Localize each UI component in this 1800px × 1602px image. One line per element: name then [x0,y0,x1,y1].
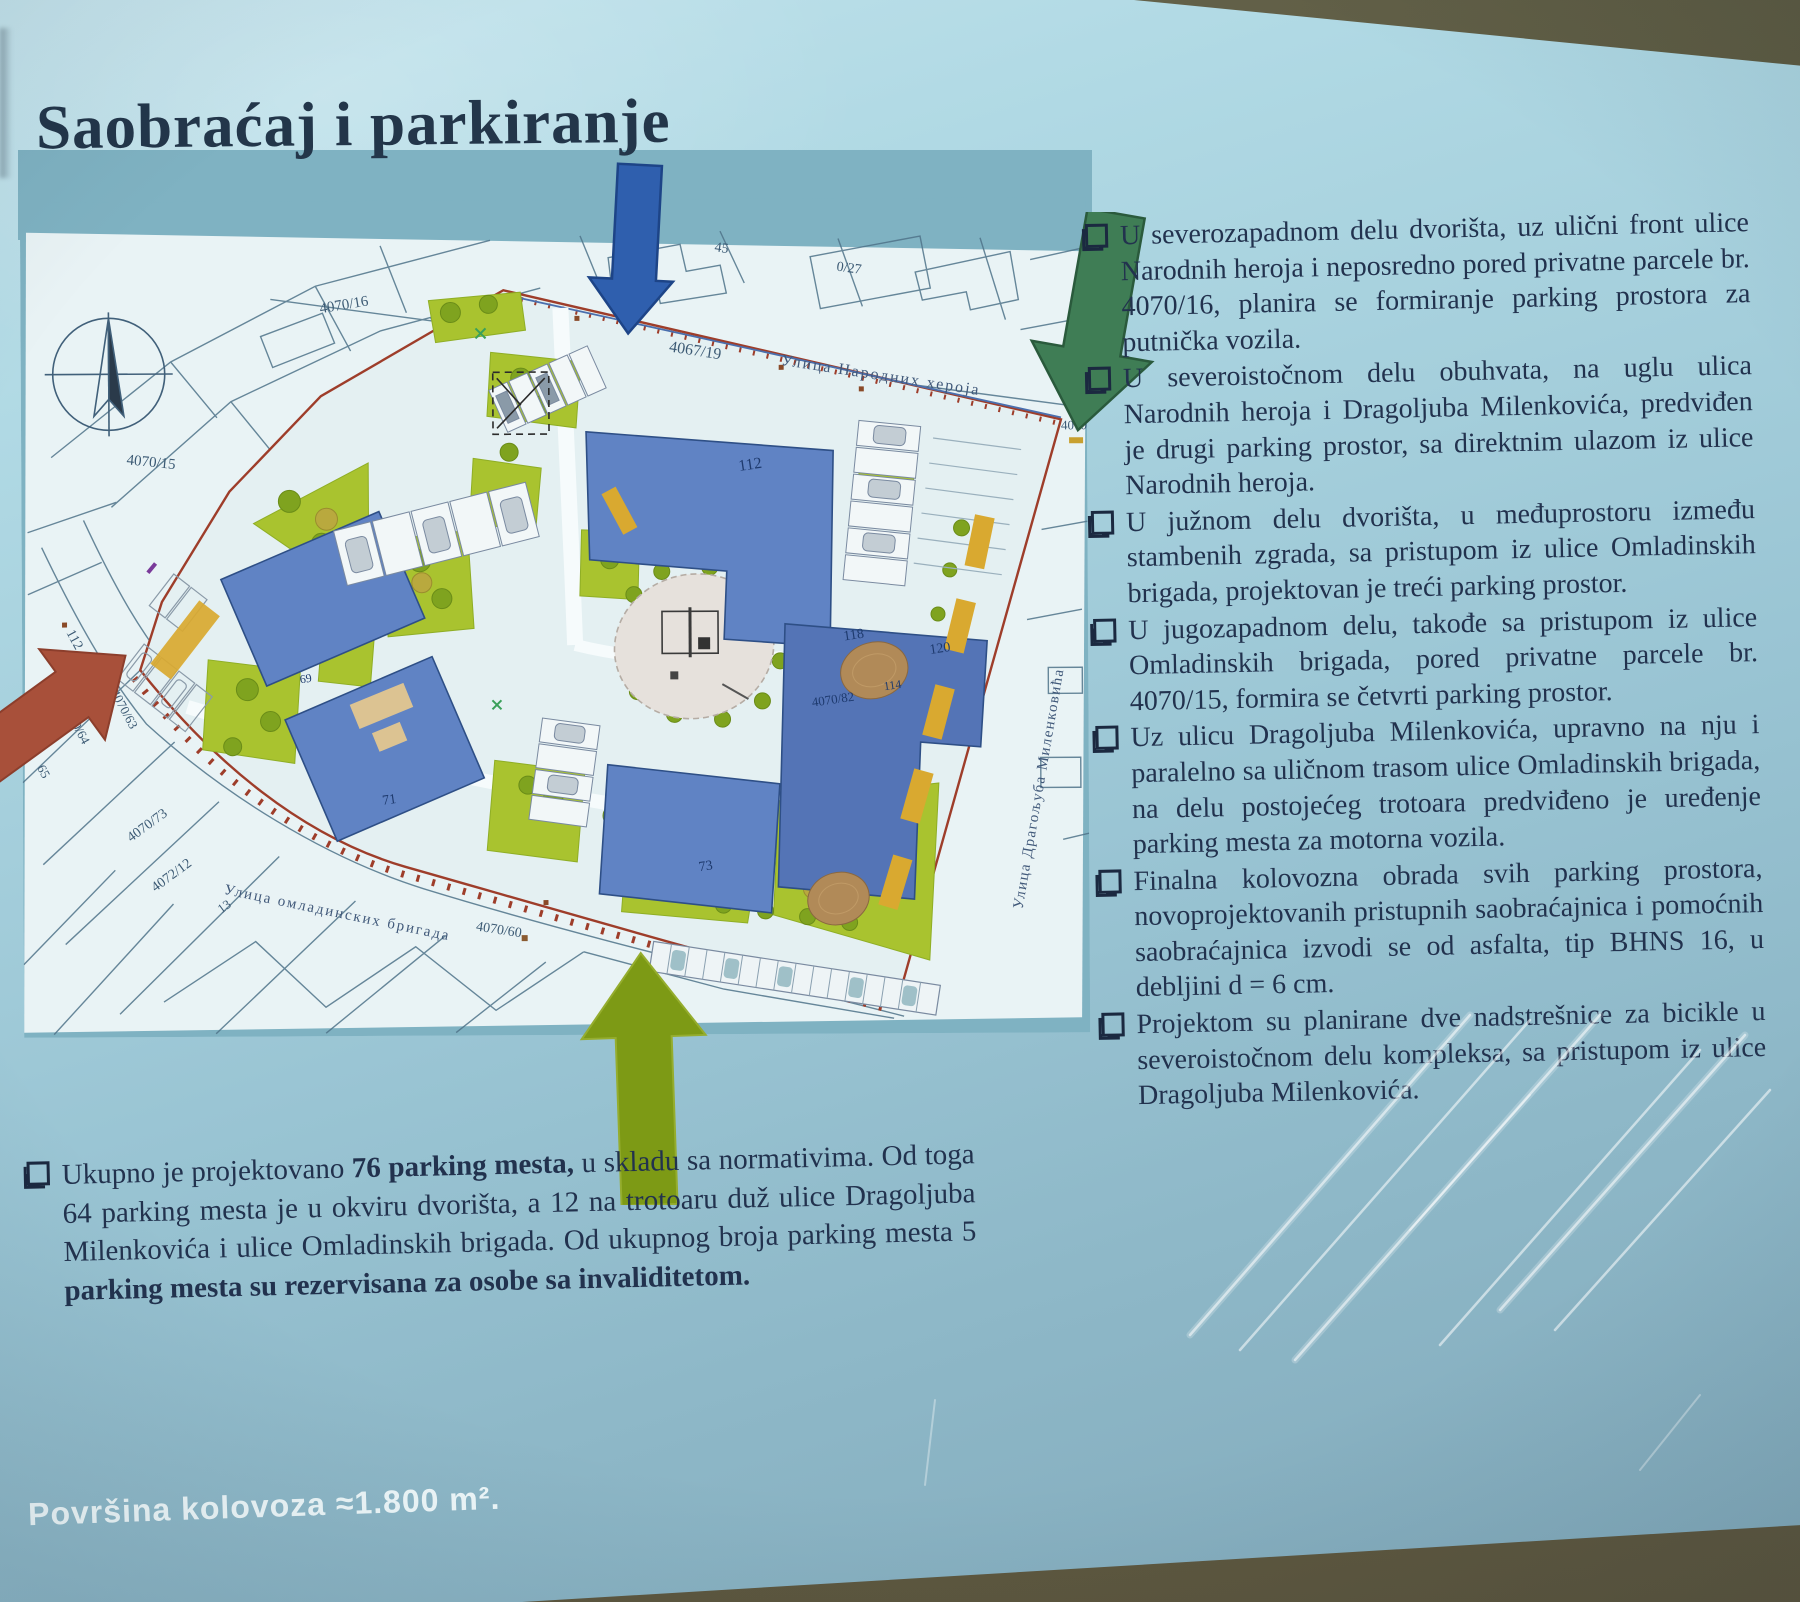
slide-photo: { "title": "Saobraćaj i parkiranje", "ma… [0,0,1800,1602]
photo-vignette [0,0,1800,1602]
